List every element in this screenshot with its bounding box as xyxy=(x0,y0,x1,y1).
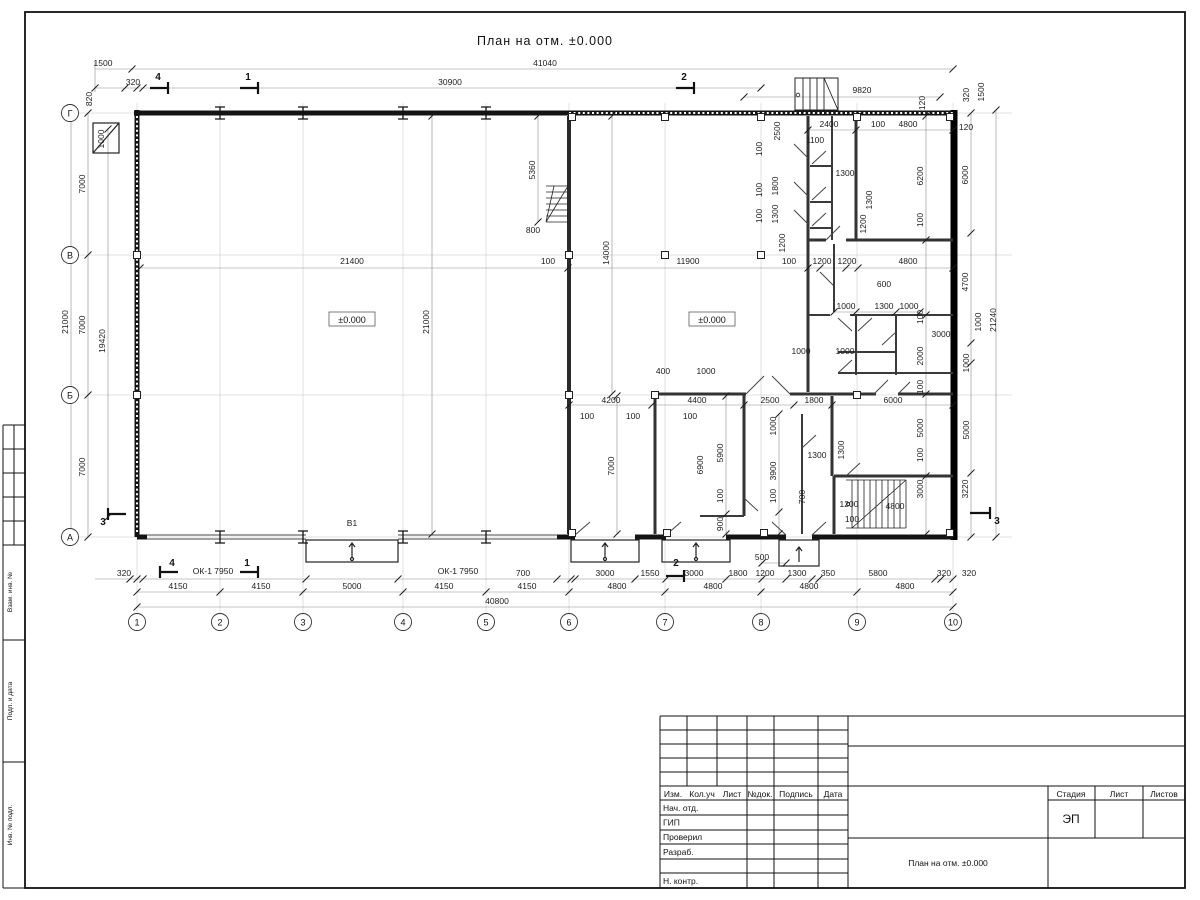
dim-label: 7000 xyxy=(77,315,87,334)
column-marker-icon xyxy=(664,530,671,537)
dim-label: 6200 xyxy=(915,166,925,185)
grid-bubble-label: 3 xyxy=(300,618,305,628)
dim-label: 100 xyxy=(683,411,697,421)
frame xyxy=(3,12,1185,888)
dim-label: 1800 xyxy=(805,395,824,405)
grid-bubble-label: 10 xyxy=(948,618,958,628)
side-strip-label: Подп. и дата xyxy=(7,681,14,720)
dim-label: 21240 xyxy=(988,308,998,332)
dim-label: 900 xyxy=(715,517,725,531)
dim-label: 3 xyxy=(100,517,106,528)
dim-label: 350 xyxy=(821,568,835,578)
title-block-row-label: Нач. отд. xyxy=(663,803,698,813)
title-block-row-label: Проверил xyxy=(663,832,702,842)
dim-label: 1 xyxy=(245,72,251,83)
grid-bubble-label: 2 xyxy=(217,618,222,628)
dim-label: 11900 xyxy=(676,256,699,266)
level-mark: ±0.000 xyxy=(338,315,365,325)
dim-label: 500 xyxy=(755,552,769,562)
grid-bubble-label: В xyxy=(67,251,73,261)
column-marker-icon xyxy=(854,114,861,121)
dim-label: 320 xyxy=(961,88,971,102)
grid-bubble-label: 8 xyxy=(758,618,763,628)
dim-label: 600 xyxy=(877,279,891,289)
dim-label: 5360 xyxy=(527,160,537,179)
dim-label: 6000 xyxy=(960,165,970,184)
dim-label: 1000 xyxy=(96,129,106,148)
dim-label: 100 xyxy=(580,411,594,421)
dim-label: 1200 xyxy=(777,233,787,252)
column-marker-icon xyxy=(947,530,954,537)
grid-bubble-label: 4 xyxy=(400,618,405,628)
dim-label: 21400 xyxy=(340,256,364,266)
dim-label: 4800 xyxy=(608,581,627,591)
dim-label: 7000 xyxy=(77,457,87,476)
dim-label: ОК-1 7950 xyxy=(193,566,234,576)
entrance-stair-icon xyxy=(795,78,838,110)
title-block-stage: ЭП xyxy=(1062,812,1079,826)
dim-label: 1 xyxy=(244,558,250,569)
dim-label: 7000 xyxy=(77,174,87,193)
dim-label: 6900 xyxy=(695,455,705,474)
dim-label: 4 xyxy=(155,72,161,83)
dim-label: 2500 xyxy=(772,121,782,140)
column-marker-icon xyxy=(566,392,573,399)
dim-label: 100 xyxy=(768,489,778,503)
dim-label: 1000 xyxy=(961,353,971,372)
column-marker-icon xyxy=(569,114,576,121)
dim-label: 1300 xyxy=(836,168,855,178)
dim-label: 320 xyxy=(937,568,951,578)
dim-label: 21000 xyxy=(60,310,70,334)
dim-label: 800 xyxy=(526,225,540,235)
dim-label: 4800 xyxy=(896,581,915,591)
dim-label: 1100 xyxy=(806,135,825,145)
dim-label: 1300 xyxy=(836,440,846,459)
column-marker-icon xyxy=(134,252,141,259)
dim-label: 100 xyxy=(754,142,764,156)
side-strip-label: Взам. инв. № xyxy=(7,572,14,612)
column-marker-icon xyxy=(652,392,659,399)
title-block-doc-title: План на отм. ±0.000 xyxy=(908,858,988,868)
grid-bubble-label: Г xyxy=(68,109,73,119)
title-block-stage-header: Стадия xyxy=(1057,789,1086,799)
dim-label: 1000 xyxy=(900,301,919,311)
dimension-ticks xyxy=(68,66,1000,611)
dim-label: 3900 xyxy=(768,461,778,480)
title-block: Изм.Кол.учЛист№док.ПодписьДатаНач. отд.Г… xyxy=(660,716,1185,888)
column-marker-icon xyxy=(947,114,954,121)
dim-label: 1000 xyxy=(836,346,855,356)
dim-label: 4150 xyxy=(435,581,454,591)
dim-label: 4800 xyxy=(899,119,918,129)
dim-label: 4800 xyxy=(899,256,918,266)
title-block-row-label: Разраб. xyxy=(663,847,694,857)
dim-label: 7000 xyxy=(606,456,616,475)
dim-label: 4200 xyxy=(602,395,621,405)
dim-label: 3 xyxy=(994,516,1000,527)
dim-label: 5000 xyxy=(961,420,971,439)
dim-label: 1500 xyxy=(976,82,986,101)
dim-label: 5000 xyxy=(343,581,362,591)
dim-label: 4700 xyxy=(960,272,970,291)
column-symbols xyxy=(134,107,954,543)
walls xyxy=(134,110,954,540)
dim-label: 100 xyxy=(871,119,885,129)
title-block-stage-header: Листов xyxy=(1150,789,1178,799)
title-block-header: Изм. xyxy=(664,789,682,799)
dim-label: 1000 xyxy=(837,301,856,311)
dim-label: 1800 xyxy=(729,568,748,578)
column-marker-icon xyxy=(761,530,768,537)
dim-label: 320 xyxy=(117,568,131,578)
dim-label: 21000 xyxy=(421,310,431,334)
dim-label: 100 xyxy=(754,209,764,223)
dim-label: 41040 xyxy=(533,58,557,68)
dim-label: 3000 xyxy=(915,479,925,498)
dim-label: В1 xyxy=(347,518,358,528)
dim-label: 2 xyxy=(673,558,679,569)
dim-label: 2000 xyxy=(915,346,925,365)
title-block-header: Кол.уч xyxy=(689,789,715,799)
dim-label: 320 xyxy=(962,568,976,578)
dim-label: 4800 xyxy=(800,581,819,591)
dim-label: 100 xyxy=(754,183,764,197)
dim-label: 5800 xyxy=(869,568,888,578)
entrance-platforms xyxy=(93,123,819,566)
dim-label: 4 xyxy=(169,558,175,569)
dim-label: 5900 xyxy=(715,443,725,462)
column-marker-icon xyxy=(854,392,861,399)
grid-bubble-label: 9 xyxy=(854,618,859,628)
title-block-row-label: ГИП xyxy=(663,818,680,828)
dim-label: 120 xyxy=(959,122,973,132)
dim-label: 1200 xyxy=(838,256,857,266)
dim-label: 1000 xyxy=(768,416,778,435)
dim-label: 4150 xyxy=(518,581,537,591)
dim-label: 1200 xyxy=(858,214,868,233)
dim-label: 3000 xyxy=(932,329,951,339)
column-marker-icon xyxy=(758,252,765,259)
dim-label: 9820 xyxy=(853,85,872,95)
dim-label: 400 xyxy=(656,366,670,376)
dim-label: 3000 xyxy=(685,568,704,578)
dim-label: 30900 xyxy=(438,77,462,87)
grid-bubble-label: А xyxy=(67,533,73,543)
dim-label: 4800 xyxy=(704,581,723,591)
dim-label: 1300 xyxy=(788,568,807,578)
dim-label: 1200 xyxy=(756,568,775,578)
level-marks: ±0.000±0.000 xyxy=(329,312,735,326)
dim-label: 1300 xyxy=(875,301,894,311)
column-marker-icon xyxy=(566,252,573,259)
title-block-header: Подпись xyxy=(779,789,813,799)
dim-label: 100 xyxy=(915,310,925,324)
grid-bubble-label: Б xyxy=(67,391,73,401)
dim-label: 2 xyxy=(681,72,687,83)
dim-label: 820 xyxy=(84,92,94,106)
dim-label: 1000 xyxy=(792,346,811,356)
dim-label: 5000 xyxy=(915,418,925,437)
title-block-stage-header: Лист xyxy=(1110,789,1129,799)
title-block-header: Дата xyxy=(824,789,843,799)
dim-label: 2500 xyxy=(761,395,780,405)
drawing-title: План на отм. ±0.000 xyxy=(477,34,613,48)
column-marker-icon xyxy=(662,114,669,121)
dim-label: 100 xyxy=(915,448,925,462)
dim-label: 700 xyxy=(797,490,807,504)
dimension-labels: 1500410403203090098208201000120320150012… xyxy=(60,58,1000,606)
dim-label: 320 xyxy=(126,77,140,87)
dim-label: 40800 xyxy=(485,596,509,606)
level-mark: ±0.000 xyxy=(698,315,725,325)
grid-bubble-label: 7 xyxy=(662,618,667,628)
dim-label: 1000 xyxy=(973,312,983,331)
dim-label: 1800 xyxy=(770,176,780,195)
dim-label: 700 xyxy=(516,568,530,578)
dim-label: 1300 xyxy=(770,204,780,223)
column-marker-icon xyxy=(569,530,576,537)
column-marker-icon xyxy=(758,114,765,121)
dim-label: 4150 xyxy=(169,581,188,591)
column-marker-icon xyxy=(662,252,669,259)
grid-bubble-label: 6 xyxy=(566,618,571,628)
grid-bubbles: 12345678910ГВБА xyxy=(62,105,962,631)
dim-label: ОК-1 7950 xyxy=(438,566,479,576)
dim-label: 2400 xyxy=(820,119,839,129)
dim-label: 1300 xyxy=(808,450,827,460)
dim-label: 4400 xyxy=(688,395,707,405)
dim-label: 100 xyxy=(845,514,859,524)
title-block-header: №док. xyxy=(748,789,773,799)
dim-label: 120 xyxy=(917,96,927,110)
dim-label: 19420 xyxy=(97,329,107,353)
floor-plan-svg: 12345678910ГВБА ±0.000±0.000 15004104032… xyxy=(0,0,1200,900)
dim-label: 1200 xyxy=(813,256,832,266)
dim-label: 1000 xyxy=(697,366,716,376)
dim-label: 3220 xyxy=(960,479,970,498)
dim-label: 4150 xyxy=(252,581,271,591)
dim-label: 6000 xyxy=(884,395,903,405)
dim-label: 100 xyxy=(626,411,640,421)
dim-label: 14000 xyxy=(601,241,611,265)
dim-label: 1300 xyxy=(864,190,874,209)
dim-label: 100 xyxy=(715,489,725,503)
drawing-sheet: 12345678910ГВБА ±0.000±0.000 15004104032… xyxy=(0,0,1200,900)
title-block-row-label: Н. контр. xyxy=(663,876,698,886)
interior-stair-icon xyxy=(546,186,568,222)
dim-label: 100 xyxy=(541,256,555,266)
side-strip: Взам. инв. №Подп. и датаИнв. № подл. xyxy=(7,572,14,845)
dim-label: 100 xyxy=(915,380,925,394)
dim-label: 3000 xyxy=(596,568,615,578)
grid-bubble-label: 1 xyxy=(134,618,139,628)
dim-label: 1550 xyxy=(641,568,660,578)
dim-label: 100 xyxy=(915,213,925,227)
column-marker-icon xyxy=(134,392,141,399)
dim-label: 1500 xyxy=(94,58,113,68)
dim-label: 1200 xyxy=(840,499,859,509)
dim-label: 100 xyxy=(782,256,796,266)
dim-label: 4800 xyxy=(886,501,905,511)
side-strip-label: Инв. № подл. xyxy=(7,805,14,846)
title-block-header: Лист xyxy=(723,789,742,799)
grid-bubble-label: 5 xyxy=(483,618,488,628)
